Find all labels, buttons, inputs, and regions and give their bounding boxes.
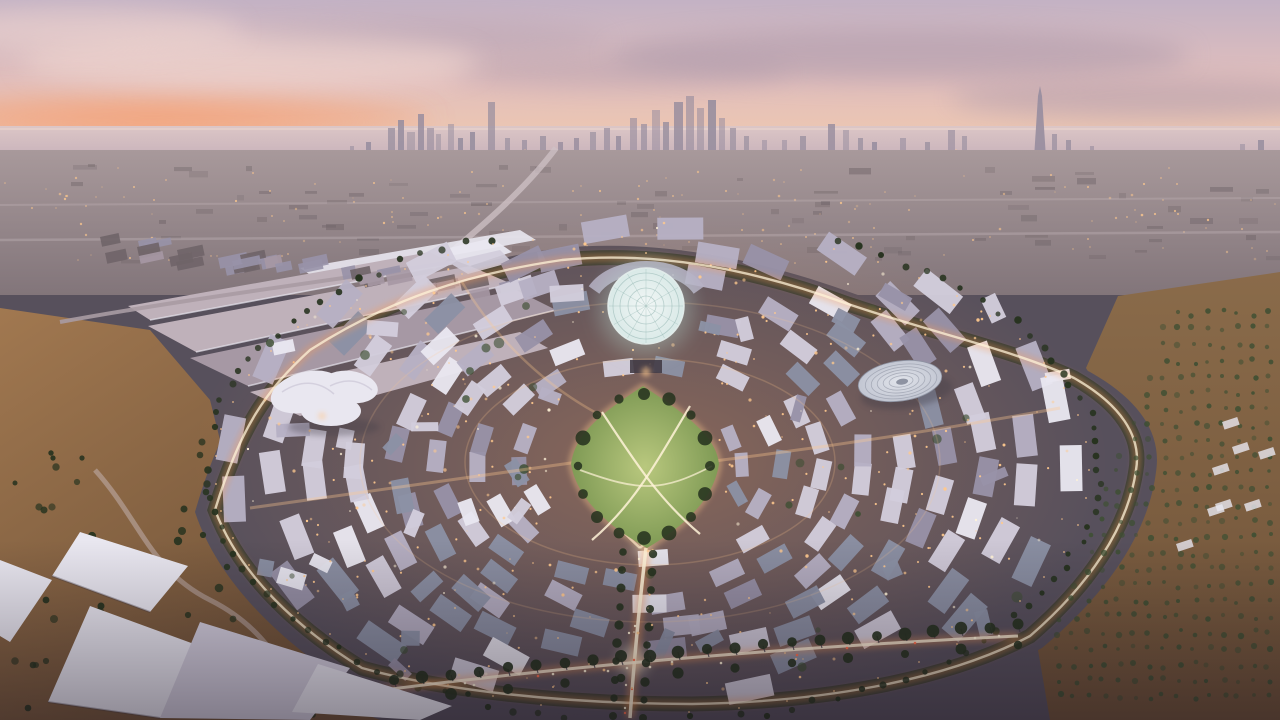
site-light	[547, 408, 550, 411]
site-light	[735, 361, 737, 363]
sprawl-light	[1176, 183, 1178, 185]
site-light	[477, 428, 479, 430]
site-light	[942, 534, 945, 537]
sprawl-light	[778, 195, 781, 198]
site-light	[466, 530, 467, 531]
building-light	[725, 491, 727, 493]
building-light	[489, 362, 491, 364]
sprawl-light	[235, 200, 237, 202]
palm-tree	[178, 527, 186, 535]
sprawl-light	[129, 257, 131, 259]
palm-tree	[355, 274, 363, 282]
street-light	[447, 254, 449, 256]
street-light	[989, 315, 991, 317]
palm-tree	[212, 424, 218, 430]
desert-tree	[1205, 360, 1209, 364]
site-light	[580, 275, 582, 277]
sprawl-block	[1135, 250, 1147, 253]
sprawl-light	[819, 213, 821, 215]
desert-tree	[1235, 504, 1241, 510]
sprawl-light	[1087, 238, 1089, 240]
site-light	[491, 440, 494, 443]
desert-tree	[1163, 471, 1167, 475]
sprawl-block	[257, 217, 267, 222]
trefoil-light	[319, 413, 325, 419]
sprawl-block	[289, 205, 308, 209]
sprawl-light	[281, 255, 283, 257]
street-light	[1063, 387, 1065, 389]
desert-tree	[1103, 501, 1109, 507]
palm-tree	[996, 312, 1001, 317]
site-light	[1001, 522, 1003, 524]
building-light	[479, 509, 481, 511]
site-light	[470, 398, 473, 401]
desert-tree	[1194, 504, 1199, 509]
sprawl-block	[1147, 226, 1163, 229]
sprawl-light	[1143, 183, 1145, 185]
sprawl-light	[884, 191, 886, 193]
site-light	[736, 522, 739, 525]
palm-tree	[1092, 438, 1099, 445]
desert-tree	[1252, 452, 1258, 458]
building-light	[371, 460, 373, 462]
sprawl-light	[1089, 246, 1091, 248]
building-light	[529, 508, 531, 510]
site-light	[475, 335, 478, 338]
desert-tree	[1190, 452, 1194, 456]
palm-tree	[980, 297, 986, 303]
skyline-tower	[708, 100, 716, 158]
desert-tree	[1164, 358, 1170, 364]
sprawl-light	[352, 197, 353, 198]
desert-tree	[1176, 500, 1182, 506]
palm-tree	[74, 479, 80, 485]
site-light	[806, 333, 808, 335]
desert-tree	[1234, 311, 1238, 315]
site-light	[772, 502, 775, 505]
sprawl-light	[1160, 177, 1162, 179]
site-light	[901, 302, 903, 304]
sprawl-light	[1131, 194, 1134, 197]
dome-lattice	[608, 268, 684, 344]
desert-tree	[1194, 362, 1198, 366]
building-light	[333, 479, 335, 481]
desert-tree	[1224, 406, 1228, 410]
desert-tree	[1161, 390, 1167, 396]
palm-tree	[1090, 410, 1096, 416]
building-light	[825, 410, 827, 412]
building-light	[567, 267, 569, 269]
building-light	[979, 475, 981, 477]
desert-tree	[1119, 532, 1125, 538]
sprawl-light	[95, 196, 97, 198]
street-light	[918, 277, 920, 279]
desert-tree	[1160, 324, 1166, 330]
building-light	[815, 309, 817, 311]
desert-tree	[1161, 341, 1165, 345]
desert-tree	[1089, 533, 1094, 538]
sprawl-light	[1177, 213, 1179, 215]
site-light	[425, 322, 427, 324]
site-light	[748, 398, 751, 401]
sprawl-light	[572, 190, 574, 192]
desert-tree	[1234, 516, 1238, 520]
site-light	[464, 383, 466, 385]
sprawl-block	[499, 165, 508, 170]
sprawl-block	[476, 184, 497, 187]
site-light	[742, 278, 745, 281]
building-light	[801, 438, 803, 440]
desert-tree	[1221, 346, 1225, 350]
site-light	[663, 222, 666, 225]
sprawl-block	[397, 225, 416, 229]
desert-tree	[1174, 392, 1180, 398]
building-light	[729, 464, 731, 466]
building-roof	[852, 462, 872, 496]
building-light	[359, 308, 361, 310]
sprawl-light	[216, 255, 217, 256]
palm-tree	[1027, 333, 1033, 339]
courtyard-tree	[360, 350, 370, 360]
building-light	[390, 358, 392, 360]
park-tree	[638, 388, 650, 400]
sprawl-light	[117, 167, 119, 169]
site-light	[827, 314, 829, 316]
palm-tree	[855, 242, 862, 249]
desert-tree	[1268, 437, 1273, 442]
sprawl-block	[737, 178, 743, 181]
sprawl-light	[840, 202, 842, 204]
desert-tree	[1239, 535, 1243, 539]
sprawl-light	[872, 238, 873, 239]
desert-tree	[1100, 517, 1105, 522]
palm-tree	[1077, 395, 1082, 400]
desert-tree	[1194, 439, 1198, 443]
cloud	[450, 56, 790, 88]
sprawl-block	[159, 220, 166, 224]
desert-tree	[1205, 308, 1211, 314]
desert-tree	[1174, 425, 1179, 430]
sprawl-block	[174, 167, 192, 171]
palm-tree	[1047, 357, 1054, 364]
desert-tree	[1147, 375, 1153, 381]
site-light	[943, 487, 946, 490]
sprawl-block	[655, 191, 667, 196]
desert-tree	[1220, 374, 1224, 378]
building-light	[805, 473, 807, 475]
sprawl-light	[1064, 186, 1066, 188]
building-roof	[657, 217, 703, 239]
site-light	[426, 332, 429, 335]
site-light	[518, 278, 520, 280]
desert-tree	[1235, 323, 1241, 329]
park-tree	[705, 461, 715, 471]
building-light	[535, 522, 537, 524]
sprawl-light	[1274, 203, 1276, 205]
building-light	[766, 320, 768, 322]
street-light	[492, 243, 494, 245]
street-light	[248, 374, 250, 376]
desert-tree	[1144, 421, 1150, 427]
palm-tree	[275, 333, 281, 339]
palm-tree	[235, 368, 241, 374]
site-light	[356, 507, 359, 510]
desert-tree	[1252, 533, 1257, 538]
sprawl-light	[85, 234, 87, 236]
desert-tree	[1251, 391, 1255, 395]
sprawl-light	[502, 185, 504, 187]
desert-tree	[1163, 518, 1169, 524]
building-light	[465, 420, 467, 422]
palm-tree	[1084, 524, 1090, 530]
site-light	[975, 530, 976, 531]
sprawl-block	[771, 209, 779, 214]
desert-tree	[1176, 310, 1180, 314]
desert-tree	[1235, 455, 1239, 459]
street-light	[297, 326, 299, 328]
sprawl-light	[737, 193, 739, 195]
palm-tree	[1093, 509, 1099, 515]
sprawl-light	[848, 221, 850, 223]
building-light	[531, 402, 533, 404]
building-light	[830, 343, 832, 345]
desert-tree	[1144, 404, 1149, 409]
skyline-tower	[686, 96, 694, 158]
desert-tree	[1179, 410, 1183, 414]
site-light	[467, 261, 469, 263]
building-light	[558, 398, 560, 400]
building-light	[491, 466, 493, 468]
sprawl-light	[963, 175, 965, 177]
building-light	[723, 358, 725, 360]
desert-tree	[1146, 454, 1151, 459]
sprawl-light	[856, 205, 859, 208]
courtyard-tree	[515, 474, 522, 481]
site-light	[340, 453, 342, 455]
palm-tree	[940, 275, 947, 282]
desert-tree	[1265, 389, 1269, 393]
sprawl-light	[392, 221, 394, 223]
building-light	[886, 451, 888, 453]
palm-tree	[52, 463, 59, 470]
site-light	[729, 268, 732, 271]
palm-tree	[1093, 453, 1100, 460]
sprawl-light	[580, 185, 582, 187]
palm-tree	[1093, 467, 1099, 473]
desert-tree	[1265, 308, 1271, 314]
desert-tree	[1160, 376, 1165, 381]
palm-tree	[207, 495, 213, 501]
site-light	[544, 458, 547, 461]
sprawl-light	[123, 196, 125, 198]
sprawl-light	[391, 211, 393, 213]
site-light	[890, 343, 893, 346]
sprawl-block	[299, 215, 317, 219]
site-light	[572, 321, 574, 323]
sprawl-block	[637, 204, 654, 209]
street-light	[232, 401, 234, 403]
desert-tree	[1134, 502, 1139, 507]
sprawl-block	[1035, 187, 1055, 190]
park-tree	[614, 394, 623, 403]
desert-tree	[1115, 489, 1121, 495]
building-light	[1004, 483, 1006, 485]
desert-tree	[1133, 437, 1138, 442]
building-light	[385, 510, 387, 512]
sprawl-block	[237, 195, 244, 200]
street-light	[956, 295, 958, 297]
site-light	[278, 423, 281, 426]
sprawl-block	[196, 209, 213, 214]
sprawl-light	[773, 179, 775, 181]
desert-tree	[1134, 470, 1139, 475]
desert-tree	[1238, 359, 1243, 364]
building-light	[719, 439, 721, 441]
building-light	[721, 382, 723, 384]
sprawl-light	[283, 220, 285, 222]
building-roof	[549, 284, 584, 303]
sprawl-light	[391, 216, 393, 218]
sprawl-light	[637, 198, 639, 200]
site-light	[391, 351, 394, 354]
desert-tree	[1269, 360, 1274, 365]
palm-tree	[488, 237, 495, 244]
sprawl-block	[410, 212, 428, 216]
sprawl-light	[64, 198, 66, 200]
sprawl-block	[349, 193, 364, 197]
desert-tree	[1134, 533, 1138, 537]
desert-tree	[1114, 468, 1118, 472]
building-light	[845, 477, 847, 479]
building-light	[792, 499, 794, 501]
building-light	[875, 503, 877, 505]
sprawl-light	[314, 183, 315, 184]
bottom-vignette	[0, 540, 1280, 720]
desert-tree	[1176, 435, 1182, 441]
sprawl-light	[697, 171, 699, 173]
desert-tree	[1134, 456, 1139, 461]
building-light	[316, 534, 318, 536]
street-light	[215, 483, 217, 485]
sprawl-light	[390, 179, 392, 181]
sprawl-block	[450, 194, 470, 198]
desert-tree	[1206, 388, 1211, 393]
sprawl-block	[1075, 172, 1094, 175]
sprawl-block	[189, 171, 208, 177]
sprawl-light	[459, 191, 461, 193]
sprawl-light	[464, 212, 466, 214]
desert-tree	[1132, 421, 1136, 425]
site-light	[726, 352, 727, 353]
site-light	[478, 474, 480, 476]
site-light	[841, 298, 842, 299]
desert-tree	[1220, 359, 1224, 363]
desert-tree	[1236, 393, 1240, 397]
building-light	[963, 366, 965, 368]
desert-tree	[1222, 308, 1227, 313]
sprawl-light	[478, 213, 480, 215]
palm-tree	[181, 506, 188, 513]
sprawl-light	[295, 208, 297, 210]
sprawl-light	[303, 240, 305, 242]
desert-tree	[1208, 473, 1212, 477]
building-light	[926, 446, 928, 448]
palm-tree	[1065, 382, 1072, 389]
sprawl-block	[1210, 187, 1233, 192]
building-roof	[1060, 445, 1083, 491]
desert-tree	[1252, 517, 1258, 523]
desert-tree	[1191, 517, 1197, 523]
building-light	[979, 537, 981, 539]
desert-tree	[1208, 343, 1212, 347]
site-light	[264, 399, 267, 402]
sprawl-light	[1226, 251, 1228, 253]
building-light	[911, 410, 913, 412]
building-light	[549, 496, 551, 498]
site-light	[726, 383, 728, 385]
street-light	[1085, 441, 1087, 443]
site-light	[1003, 444, 1006, 447]
site-light	[988, 385, 990, 387]
sprawl-block	[1089, 255, 1106, 259]
sprawl-block	[1149, 239, 1162, 242]
sprawl-light	[77, 259, 79, 261]
sprawl-light	[1250, 199, 1252, 201]
desert-tree	[1116, 453, 1122, 459]
desert-tree	[1250, 405, 1255, 410]
sprawl-block	[792, 218, 804, 223]
sprawl-light	[1207, 219, 1209, 221]
site-light	[976, 318, 979, 321]
site-light	[761, 315, 764, 318]
desert-tree	[1206, 326, 1211, 331]
sprawl-light	[1168, 167, 1170, 169]
sprawl-block	[1032, 176, 1055, 182]
site-light	[774, 312, 776, 314]
desert-tree	[1128, 487, 1134, 493]
building-light	[622, 374, 624, 376]
site-light	[485, 398, 488, 401]
sprawl-light	[210, 255, 211, 256]
site-light	[252, 500, 254, 502]
sprawl-light	[59, 193, 62, 196]
sprawl-light	[4, 182, 6, 184]
sprawl-light	[1050, 174, 1052, 176]
sprawl-light	[1054, 191, 1056, 193]
site-light	[781, 436, 783, 438]
site-light	[870, 410, 872, 412]
building-light	[902, 525, 904, 527]
desert-tree	[1219, 441, 1224, 446]
desert-tree	[1149, 485, 1155, 491]
building-light	[924, 334, 926, 336]
gate-light	[642, 368, 650, 376]
sprawl-light	[1154, 213, 1156, 215]
site-light	[945, 430, 947, 432]
sprawl-light	[1266, 250, 1268, 252]
site-light	[306, 324, 308, 326]
palm-tree	[835, 238, 842, 245]
sprawl-block	[985, 167, 995, 173]
site-light	[292, 469, 295, 472]
desert-tree	[1204, 534, 1210, 540]
palm-tree	[957, 285, 962, 290]
building-roof	[1014, 463, 1038, 506]
site-light	[362, 503, 365, 506]
desert-tree	[1190, 472, 1195, 477]
site-light	[945, 370, 948, 373]
site-light	[545, 470, 547, 472]
